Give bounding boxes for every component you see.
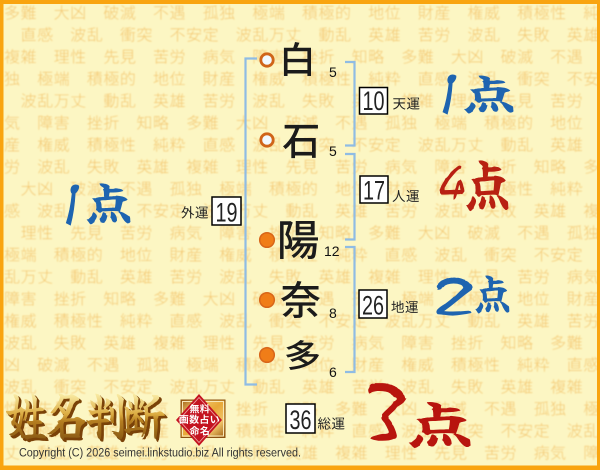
svg-text:10: 10	[363, 86, 385, 116]
svg-text:8: 8	[329, 305, 337, 321]
svg-text:Copyright (C) 2026 seimei.link: Copyright (C) 2026 seimei.linkstudio.biz…	[19, 448, 301, 460]
svg-text:5: 5	[329, 143, 337, 159]
svg-text:36: 36	[290, 405, 312, 435]
svg-text:5: 5	[329, 64, 337, 80]
svg-text:26: 26	[362, 291, 384, 321]
svg-text:12: 12	[324, 243, 340, 259]
svg-text:19: 19	[216, 198, 238, 228]
svg-text:6: 6	[329, 364, 337, 380]
svg-text:17: 17	[363, 176, 385, 206]
